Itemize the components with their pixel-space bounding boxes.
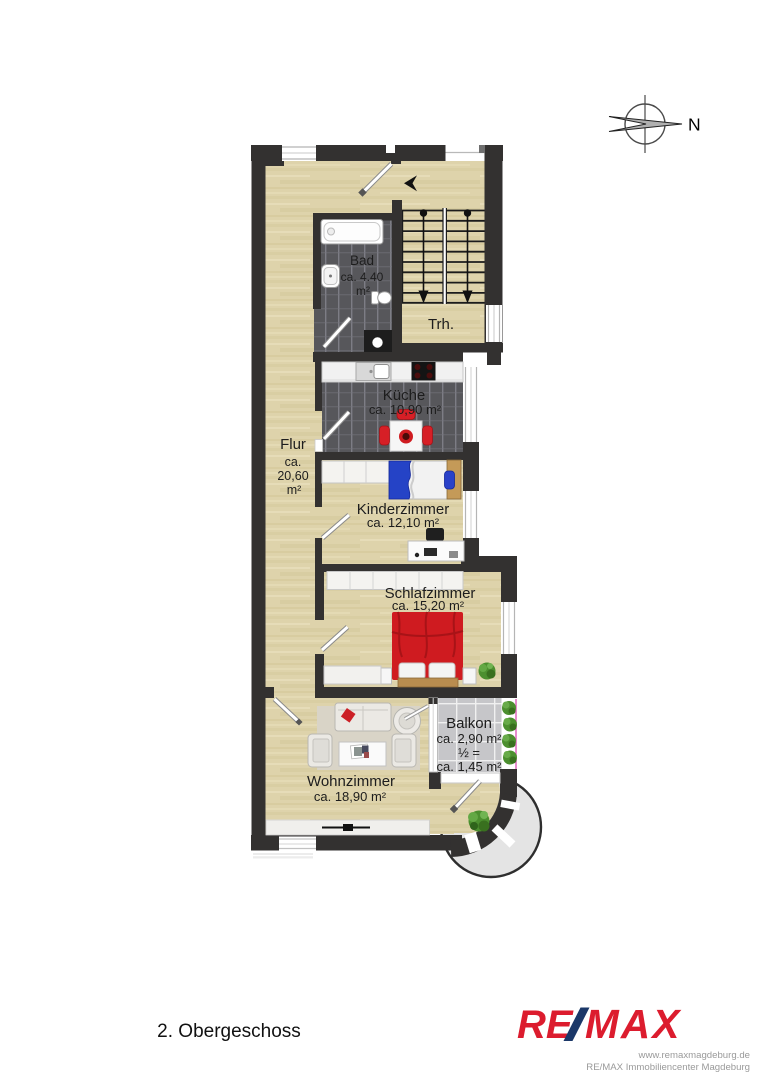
svg-text:Bad: Bad	[350, 253, 374, 268]
svg-text:m²: m²	[287, 483, 302, 497]
svg-text:ca. 4.40: ca. 4.40	[341, 270, 384, 284]
svg-text:m²: m²	[356, 284, 370, 298]
svg-text:ca. 2,90 m²: ca. 2,90 m²	[436, 731, 502, 746]
svg-text:Trh.: Trh.	[428, 316, 454, 333]
svg-text:2. Obergeschoss: 2. Obergeschoss	[157, 1021, 301, 1042]
svg-text:ca. 10,90 m²: ca. 10,90 m²	[369, 402, 442, 417]
svg-text:ca. 18,90 m²: ca. 18,90 m²	[314, 789, 387, 804]
svg-text:ca. 12,10 m²: ca. 12,10 m²	[367, 515, 440, 530]
svg-text:MAX: MAX	[585, 1001, 682, 1047]
svg-text:ca. 1,45 m²: ca. 1,45 m²	[436, 759, 502, 774]
svg-text:ca.: ca.	[285, 455, 302, 469]
svg-text:½ =: ½ =	[458, 745, 480, 760]
svg-text:www.remaxmagdeburg.de: www.remaxmagdeburg.de	[638, 1050, 750, 1061]
svg-text:N: N	[688, 115, 701, 135]
svg-text:20,60: 20,60	[277, 469, 308, 483]
svg-text:Wohnzimmer: Wohnzimmer	[307, 773, 395, 790]
svg-text:RE/MAX Immobiliencenter Magdeb: RE/MAX Immobiliencenter Magdeburg	[586, 1062, 750, 1073]
svg-text:Balkon: Balkon	[446, 715, 492, 732]
svg-text:Flur: Flur	[280, 436, 306, 453]
svg-text:ca. 15,20 m²: ca. 15,20 m²	[392, 598, 465, 613]
